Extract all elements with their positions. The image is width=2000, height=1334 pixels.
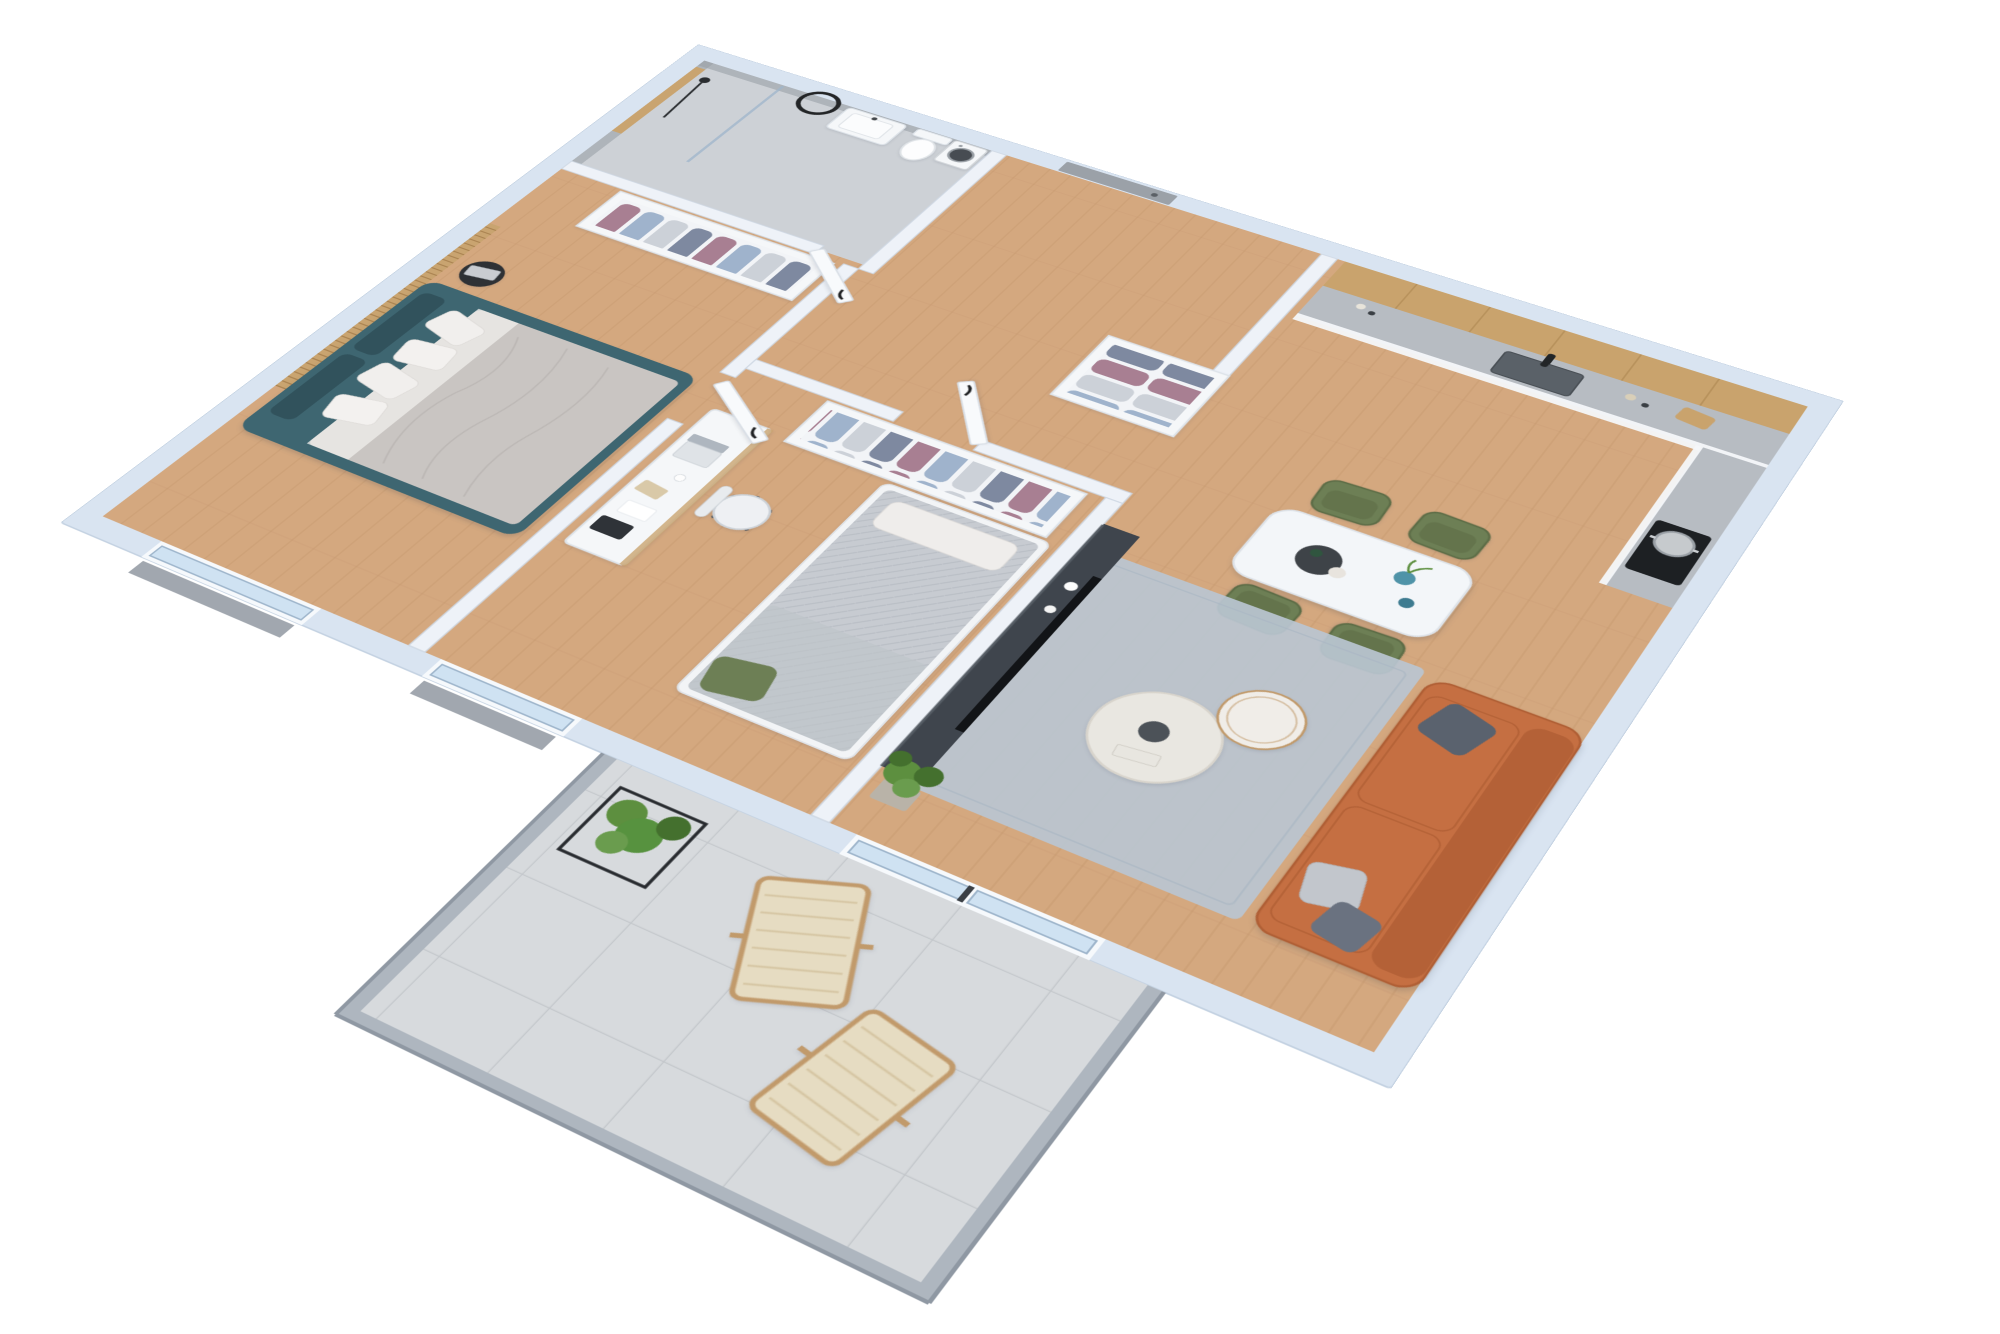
floorplan-render-canvas: [0, 0, 2000, 1334]
armrest: [858, 946, 874, 947]
armrest: [730, 935, 746, 936]
apartment-svg: [0, 44, 1844, 1334]
apartment-plan: [0, 44, 1844, 1334]
scene-3d-wrapper: [0, 0, 2000, 1334]
